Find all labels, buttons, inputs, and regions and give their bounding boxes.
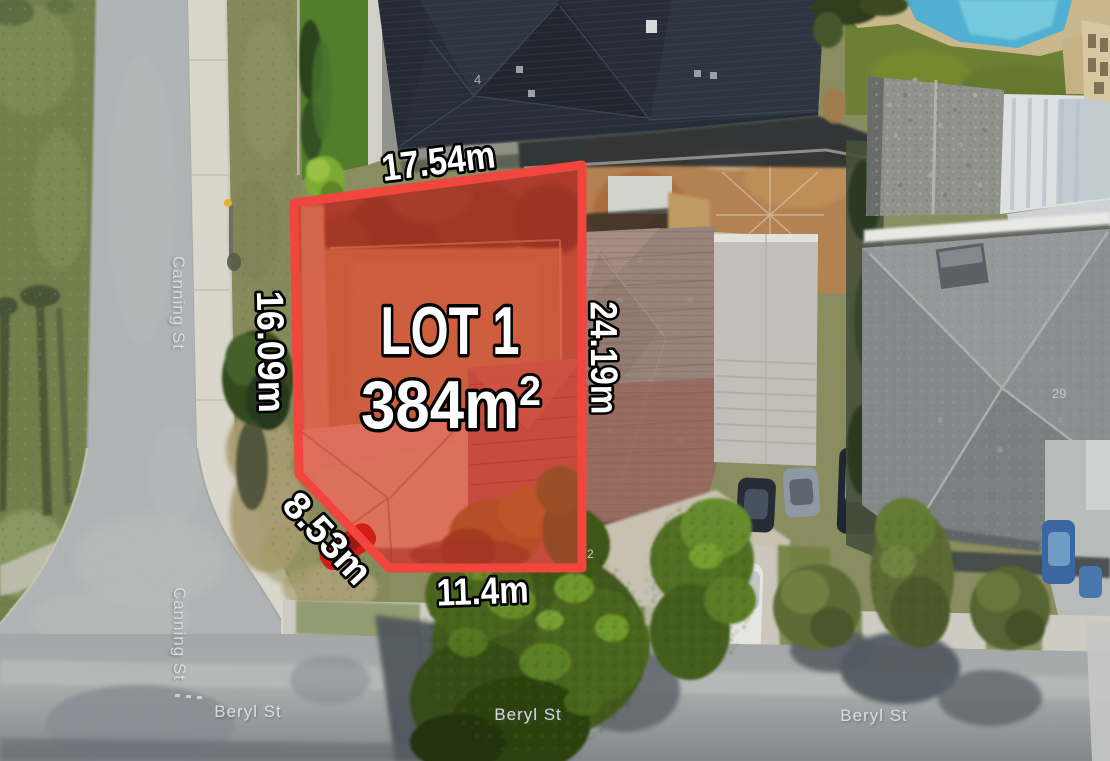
svg-text:2: 2 <box>519 367 541 414</box>
svg-text:384m: 384m <box>361 367 519 443</box>
svg-text:4: 4 <box>474 72 481 87</box>
svg-text:Beryl St: Beryl St <box>214 702 282 721</box>
svg-text:Canning St: Canning St <box>170 587 189 681</box>
svg-text:24.19m: 24.19m <box>582 301 625 414</box>
svg-text:16.09m: 16.09m <box>248 290 292 413</box>
svg-text:Beryl St: Beryl St <box>840 706 908 725</box>
svg-text:Beryl St: Beryl St <box>494 705 562 724</box>
svg-text:Canning St: Canning St <box>169 256 188 350</box>
svg-text:2: 2 <box>587 547 594 561</box>
svg-text:29: 29 <box>1052 386 1066 401</box>
svg-text:11.4m: 11.4m <box>436 569 529 614</box>
svg-text:LOT 1: LOT 1 <box>381 293 520 369</box>
